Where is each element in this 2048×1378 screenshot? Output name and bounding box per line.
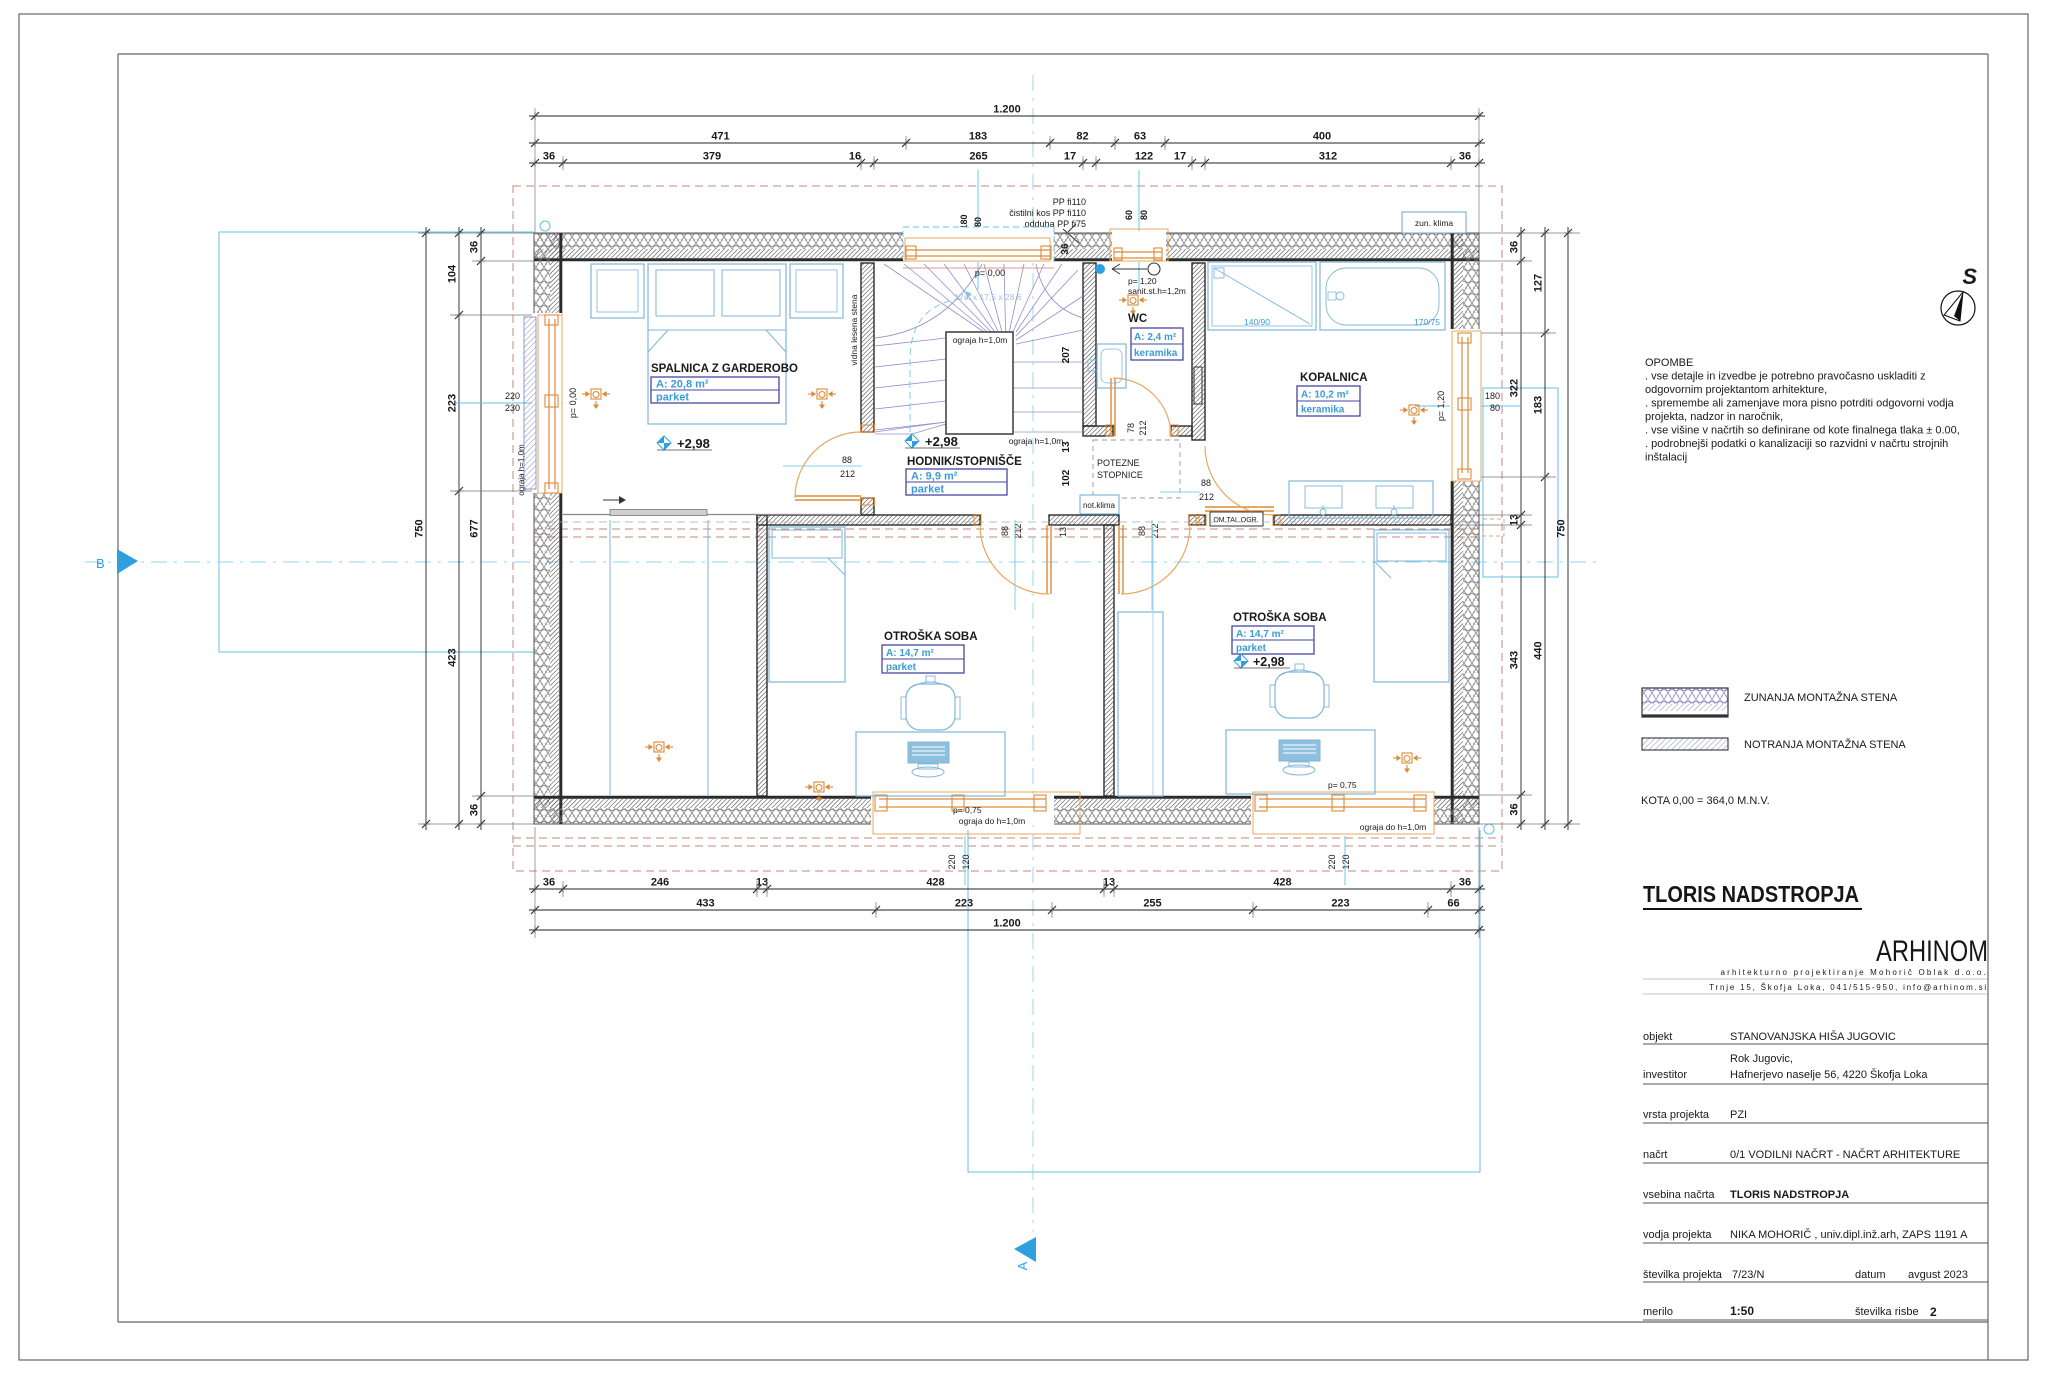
- svg-text:180: 180: [1485, 391, 1500, 401]
- svg-text:p= 1,20: p= 1,20: [1436, 391, 1446, 421]
- svg-text:parket: parket: [911, 484, 944, 496]
- svg-text:13: 13: [756, 877, 768, 889]
- svg-text:B: B: [96, 556, 105, 571]
- svg-text:STOPNICE: STOPNICE: [1097, 470, 1143, 480]
- svg-text:88: 88: [1000, 526, 1010, 536]
- svg-text:datum: datum: [1855, 1269, 1886, 1281]
- svg-text:številka risbe: številka risbe: [1855, 1306, 1919, 1318]
- svg-text:STANOVANJSKA HIŠA JUGOVIC: STANOVANJSKA HIŠA JUGOVIC: [1730, 1030, 1896, 1043]
- svg-text:zun. klima: zun. klima: [1415, 218, 1454, 228]
- svg-text:+2,98: +2,98: [925, 434, 958, 449]
- svg-text:343: 343: [1509, 651, 1521, 669]
- svg-text:82: 82: [1076, 131, 1088, 143]
- svg-text:OPOMBE: OPOMBE: [1645, 357, 1693, 369]
- svg-text:80: 80: [1139, 210, 1149, 220]
- svg-text:+2,98: +2,98: [1253, 655, 1285, 669]
- svg-text:A: 14,7 m²: A: 14,7 m²: [1236, 629, 1284, 640]
- svg-text:projekta, nadzor in naročnik,: projekta, nadzor in naročnik,: [1645, 411, 1783, 423]
- svg-text:avgust 2023: avgust 2023: [1908, 1269, 1968, 1281]
- svg-text:WC: WC: [1128, 313, 1147, 325]
- svg-text:13: 13: [1058, 527, 1068, 537]
- svg-text:1.200: 1.200: [993, 104, 1021, 116]
- svg-text:parket: parket: [886, 662, 917, 673]
- svg-text:220: 220: [505, 391, 520, 401]
- svg-text:750: 750: [414, 519, 426, 537]
- svg-text:212: 212: [1199, 492, 1214, 502]
- svg-text:ograja h=1,0m: ograja h=1,0m: [1009, 436, 1064, 446]
- svg-text:NIKA MOHORIČ , univ.dipl.inž.a: NIKA MOHORIČ , univ.dipl.inž.arh, ZAPS 1…: [1730, 1228, 1968, 1241]
- svg-text:OTROŠKA SOBA: OTROŠKA SOBA: [1233, 611, 1327, 624]
- svg-text:36: 36: [469, 241, 481, 253]
- svg-text:120: 120: [961, 854, 971, 869]
- svg-text:Rok Jugovic,: Rok Jugovic,: [1730, 1053, 1793, 1065]
- svg-text:17st x 17,5 x 28,6: 17st x 17,5 x 28,6: [954, 292, 1021, 302]
- svg-text:440: 440: [1533, 641, 1545, 659]
- svg-text:p= 0,75: p= 0,75: [1328, 780, 1357, 790]
- svg-text:. podrobnejši podatki o kanali: . podrobnejši podatki o kanalizaciji so …: [1645, 438, 1948, 450]
- svg-text:13: 13: [1061, 441, 1072, 453]
- svg-text:ZUNANJA MONTAŽNA STENA: ZUNANJA MONTAŽNA STENA: [1744, 691, 1898, 704]
- svg-text:104: 104: [447, 264, 459, 283]
- svg-text:čistilni kos PP fi110: čistilni kos PP fi110: [1009, 208, 1086, 218]
- svg-text:80: 80: [1490, 403, 1500, 413]
- svg-text:inštalacij: inštalacij: [1645, 452, 1687, 464]
- svg-text:13: 13: [1103, 877, 1115, 889]
- svg-text:PZI: PZI: [1730, 1109, 1747, 1121]
- svg-text:36: 36: [1509, 803, 1521, 815]
- svg-text:HODNIK/STOPNIŠČE: HODNIK/STOPNIŠČE: [907, 455, 1022, 468]
- svg-text:ograja do h=1,0m: ograja do h=1,0m: [1360, 822, 1426, 832]
- svg-text:80: 80: [973, 217, 983, 227]
- svg-text:16: 16: [849, 151, 861, 163]
- svg-text:265: 265: [969, 151, 987, 163]
- svg-text:POTEZNE: POTEZNE: [1097, 458, 1140, 468]
- svg-text:170/75: 170/75: [1414, 317, 1440, 327]
- svg-text:423: 423: [447, 648, 459, 666]
- svg-text:63: 63: [1134, 131, 1146, 143]
- svg-text:OM.TAL.OGR.: OM.TAL.OGR.: [1213, 517, 1258, 524]
- svg-text:+2,98: +2,98: [677, 436, 710, 451]
- svg-text:A: 14,7 m²: A: 14,7 m²: [886, 648, 934, 659]
- svg-text:120: 120: [1341, 854, 1351, 869]
- svg-text:p= 0,00: p= 0,00: [975, 268, 1005, 278]
- svg-text:2: 2: [1930, 1305, 1937, 1319]
- svg-text:379: 379: [703, 151, 721, 163]
- svg-text:. vse višine v načrtih so defi: . vse višine v načrtih so definirane od …: [1645, 425, 1960, 437]
- svg-text:Trnje 15, Škofja Loka, 041/5: Trnje 15, Škofja Loka, 041/515-950, info…: [1709, 983, 1988, 992]
- svg-text:p= 0,00: p= 0,00: [568, 388, 578, 418]
- svg-text:183: 183: [1533, 396, 1545, 414]
- svg-text:88: 88: [1201, 478, 1211, 488]
- svg-text:36: 36: [1459, 151, 1471, 163]
- svg-text:načrt: načrt: [1643, 1149, 1667, 1161]
- svg-text:246: 246: [651, 877, 669, 889]
- svg-text:A: 2,4 m²: A: 2,4 m²: [1134, 332, 1177, 343]
- svg-text:A: 9,9 m²: A: 9,9 m²: [911, 471, 958, 483]
- svg-text:428: 428: [926, 877, 944, 889]
- svg-text:TLORIS NADSTROPJA: TLORIS NADSTROPJA: [1730, 1189, 1849, 1201]
- svg-text:investitor: investitor: [1643, 1069, 1687, 1081]
- svg-text:not.klima: not.klima: [1083, 501, 1116, 510]
- svg-text:parket: parket: [656, 392, 689, 404]
- svg-text:OTROŠKA SOBA: OTROŠKA SOBA: [884, 630, 978, 643]
- svg-text:NOTRANJA MONTAŽNA STENA: NOTRANJA MONTAŽNA STENA: [1744, 738, 1906, 751]
- svg-text:17: 17: [1064, 151, 1076, 163]
- svg-text:677: 677: [469, 519, 481, 537]
- svg-text:keramika: keramika: [1134, 348, 1178, 359]
- svg-text:PP fi110: PP fi110: [1053, 197, 1086, 207]
- svg-text:S: S: [1962, 264, 1977, 289]
- svg-text:0/1 VODILNI NAČRT - NAČRT ARH: 0/1 VODILNI NAČRT - NAČRT ARHITEKTURE: [1730, 1148, 1960, 1161]
- svg-text:220: 220: [947, 854, 957, 869]
- svg-text:13: 13: [1509, 514, 1521, 526]
- svg-text:merilo: merilo: [1643, 1306, 1673, 1318]
- svg-text:212: 212: [1013, 523, 1023, 538]
- svg-text:127: 127: [1533, 274, 1545, 292]
- svg-text:88: 88: [842, 455, 852, 465]
- svg-text:78: 78: [1126, 423, 1136, 433]
- svg-text:36: 36: [469, 804, 481, 816]
- svg-text:vidna lesena stena: vidna lesena stena: [849, 294, 859, 365]
- svg-text:312: 312: [1319, 151, 1337, 163]
- svg-text:230: 230: [505, 403, 520, 413]
- svg-text:vodja projekta: vodja projekta: [1643, 1229, 1712, 1241]
- svg-text:Hafnerjevo naselje 56, 4220 Šk: Hafnerjevo naselje 56, 4220 Škofja Loka: [1730, 1068, 1928, 1081]
- svg-text:322: 322: [1509, 379, 1521, 397]
- svg-text:400: 400: [1313, 131, 1331, 143]
- svg-text:odgovornim projektantom arhite: odgovornim projektantom arhitekture,: [1645, 384, 1827, 396]
- svg-text:A: 20,8 m²: A: 20,8 m²: [656, 379, 709, 391]
- svg-text:88: 88: [1137, 526, 1147, 536]
- svg-text:objekt: objekt: [1643, 1031, 1672, 1043]
- svg-text:parket: parket: [1236, 643, 1267, 654]
- svg-text:212: 212: [840, 469, 855, 479]
- svg-text:ograja do h=1,0m: ograja do h=1,0m: [959, 816, 1025, 826]
- svg-text:750: 750: [1556, 519, 1568, 537]
- svg-text:36: 36: [543, 151, 555, 163]
- svg-text:. vse detajle in izvedbe je po: . vse detajle in izvedbe je potrebno pra…: [1645, 371, 1926, 383]
- svg-text:433: 433: [696, 898, 714, 910]
- svg-text:1:50: 1:50: [1730, 1304, 1754, 1318]
- svg-text:207: 207: [1061, 346, 1072, 363]
- svg-text:vsebina načrta: vsebina načrta: [1643, 1189, 1715, 1201]
- svg-text:140/90: 140/90: [1244, 317, 1270, 327]
- svg-text:KOPALNICA: KOPALNICA: [1300, 372, 1368, 384]
- svg-text:A: A: [1015, 1261, 1030, 1270]
- svg-text:. spremembe ali zamenjave mora: . spremembe ali zamenjave mora pisno pot…: [1645, 398, 1955, 410]
- svg-text:223: 223: [955, 898, 973, 910]
- svg-text:TLORIS NADSTROPJA: TLORIS NADSTROPJA: [1643, 881, 1859, 907]
- svg-text:17: 17: [1174, 151, 1186, 163]
- svg-text:36: 36: [1509, 241, 1521, 253]
- svg-text:428: 428: [1273, 877, 1291, 889]
- svg-text:183: 183: [969, 131, 987, 143]
- svg-text:223: 223: [1331, 898, 1349, 910]
- svg-text:številka projekta: številka projekta: [1643, 1269, 1723, 1281]
- svg-text:1.200: 1.200: [993, 918, 1021, 930]
- svg-text:A: 10,2 m²: A: 10,2 m²: [1301, 390, 1349, 401]
- svg-text:ARHINOM: ARHINOM: [1876, 935, 1988, 968]
- svg-text:66: 66: [1447, 898, 1459, 910]
- svg-text:keramika: keramika: [1301, 405, 1345, 416]
- svg-text:36: 36: [1459, 877, 1471, 889]
- svg-text:122: 122: [1135, 151, 1153, 163]
- svg-text:36: 36: [1060, 243, 1071, 255]
- svg-text:ograja h=1,0m: ograja h=1,0m: [953, 335, 1008, 345]
- svg-text:p= 0,75: p= 0,75: [953, 805, 982, 815]
- svg-text:102: 102: [1061, 469, 1072, 486]
- svg-text:p= 1,20: p= 1,20: [1128, 276, 1157, 286]
- svg-text:212: 212: [1150, 523, 1160, 538]
- svg-text:SPALNICA Z GARDEROBO: SPALNICA Z GARDEROBO: [651, 363, 798, 375]
- svg-text:arhitekturno projektiranje Moh: arhitekturno projektiranje Mohorič Oblak…: [1721, 968, 1988, 977]
- svg-text:KOTA 0,00 = 364,0 M.N.V.: KOTA 0,00 = 364,0 M.N.V.: [1641, 795, 1770, 807]
- svg-text:212: 212: [1138, 420, 1148, 435]
- svg-text:36: 36: [543, 877, 555, 889]
- svg-text:7/23/N: 7/23/N: [1732, 1269, 1764, 1281]
- svg-text:vrsta projekta: vrsta projekta: [1643, 1109, 1710, 1121]
- svg-text:220: 220: [1327, 854, 1337, 869]
- svg-text:471: 471: [711, 131, 729, 143]
- svg-text:60: 60: [1124, 210, 1134, 220]
- svg-text:255: 255: [1143, 898, 1161, 910]
